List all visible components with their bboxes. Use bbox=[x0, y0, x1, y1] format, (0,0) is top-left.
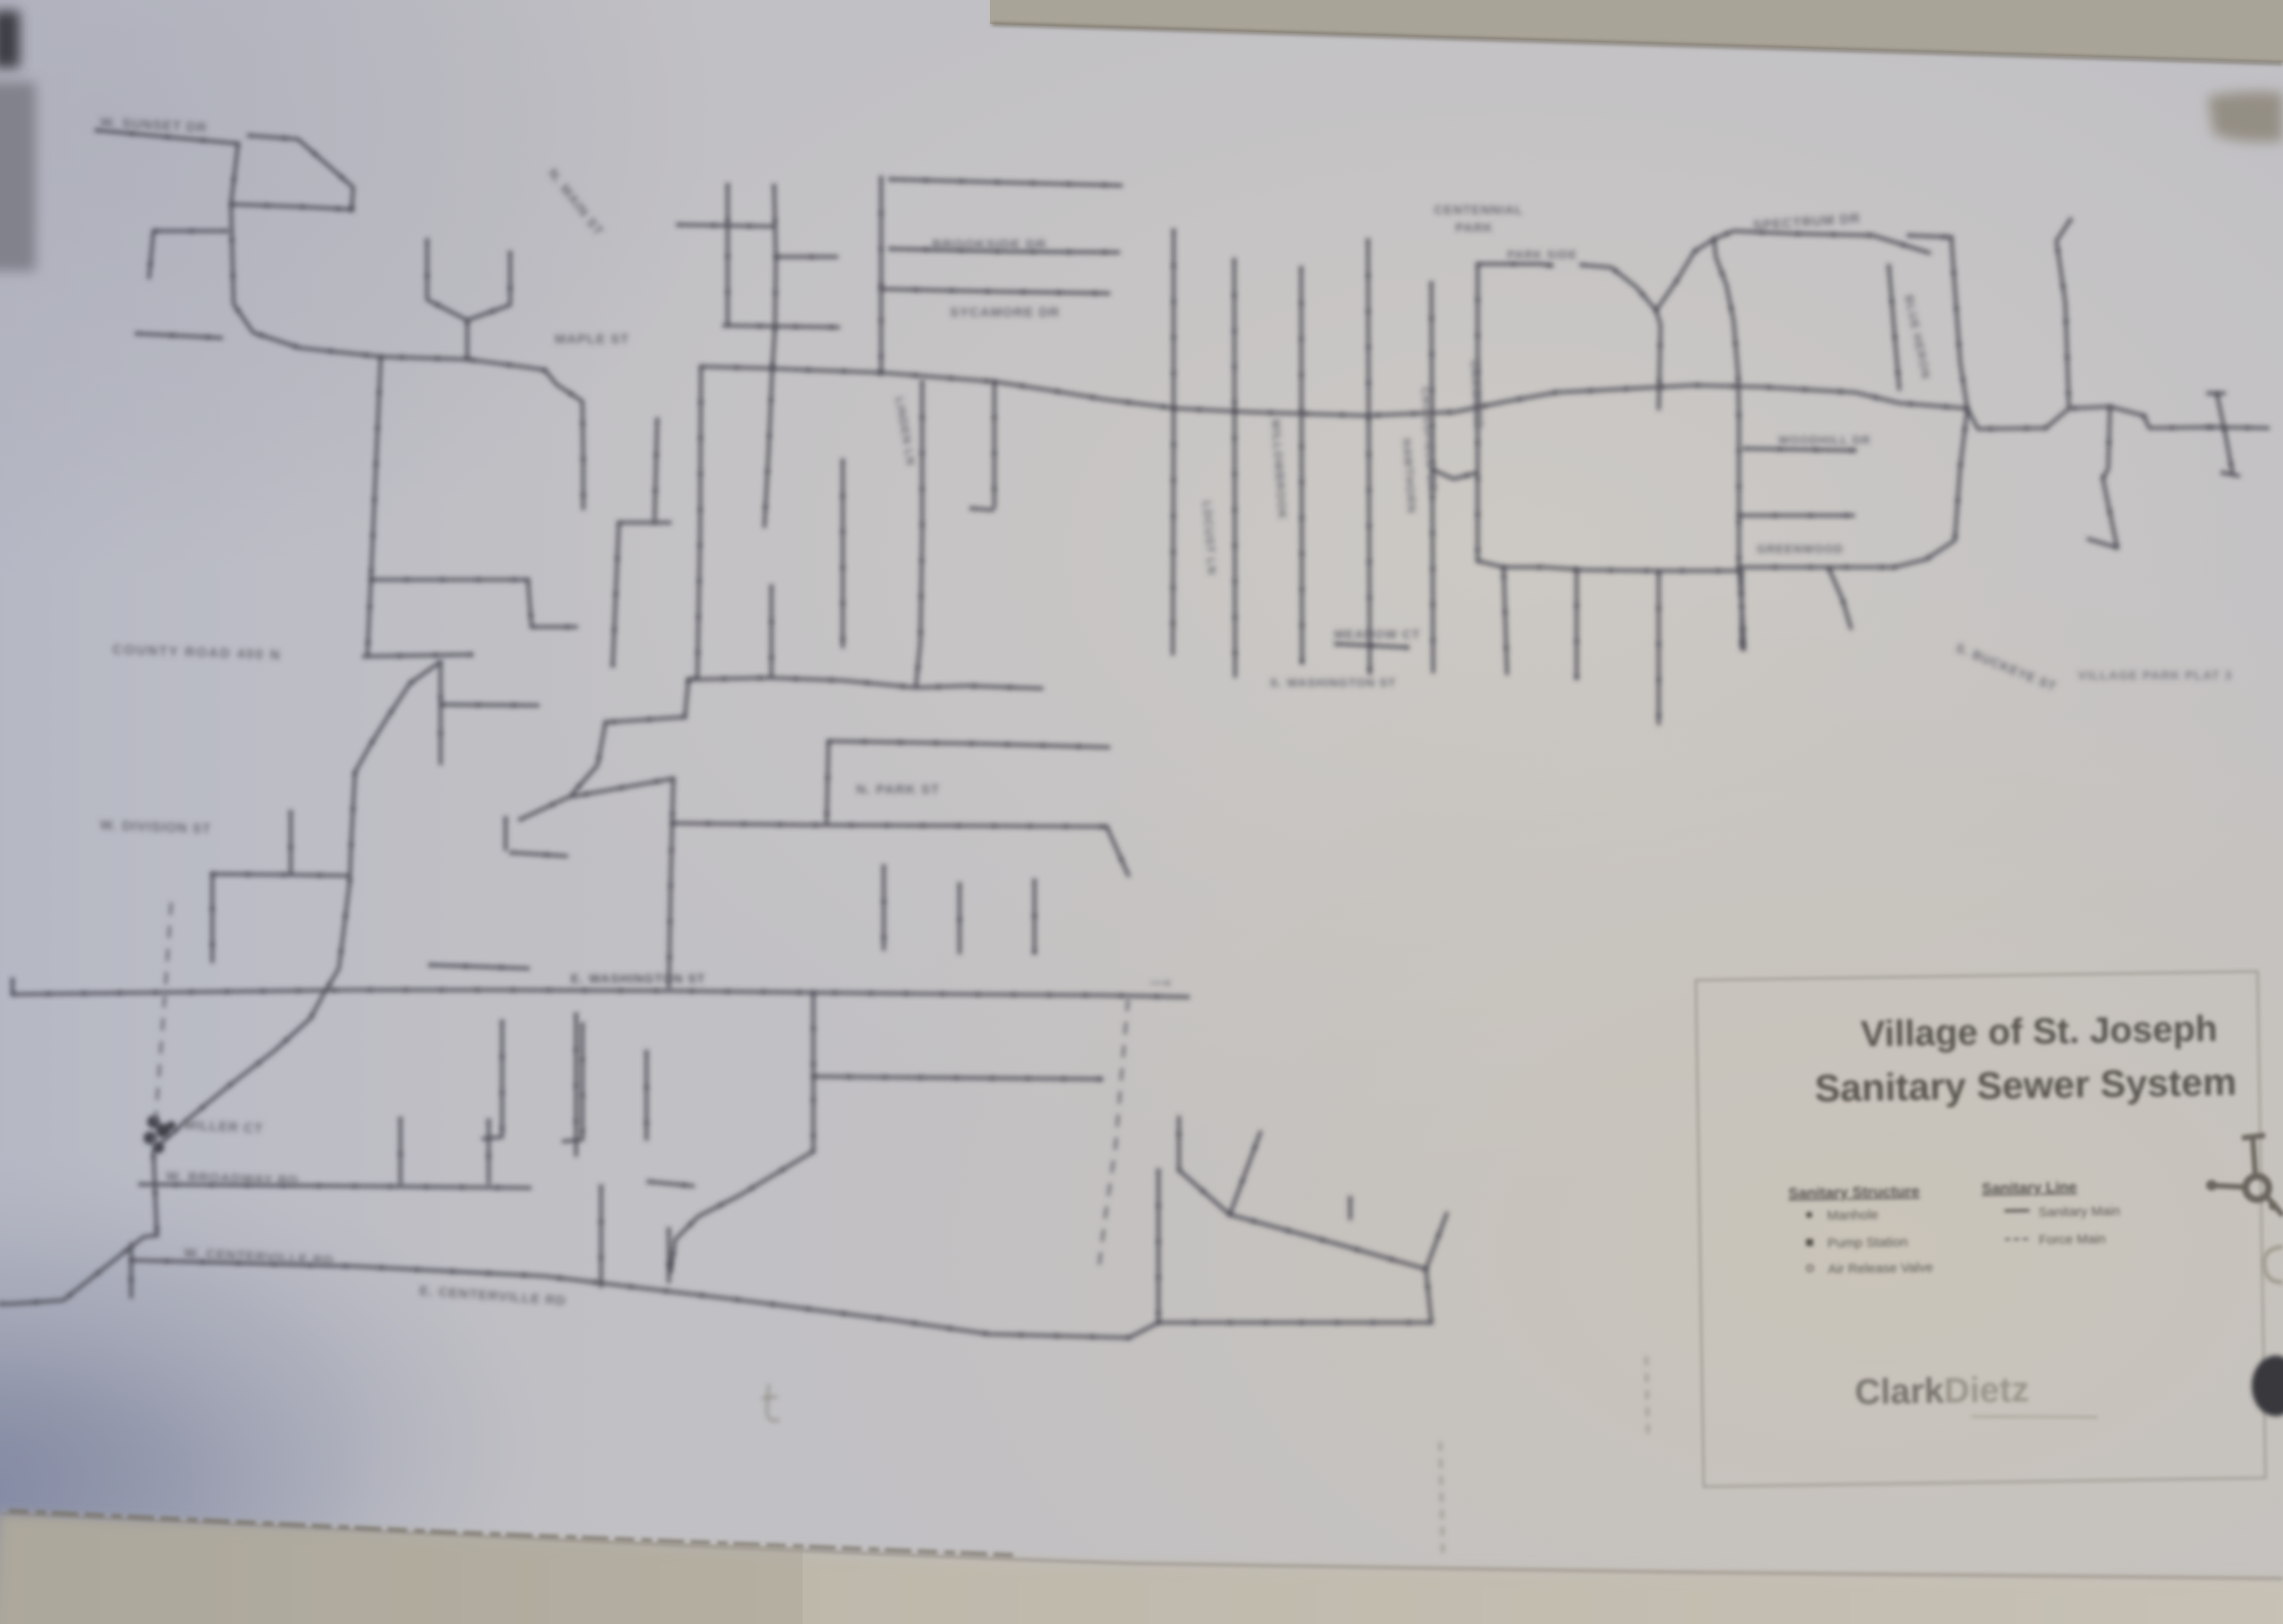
svg-text:CENTENNIAL: CENTENNIAL bbox=[1434, 202, 1523, 217]
svg-text:MAPLE ST: MAPLE ST bbox=[555, 332, 630, 347]
svg-text:PARK: PARK bbox=[1455, 220, 1494, 235]
svg-text:MEADOW CT: MEADOW CT bbox=[1334, 627, 1421, 641]
svg-text:SYCAMORE DR: SYCAMORE DR bbox=[950, 305, 1060, 320]
svg-text:Pump Station: Pump Station bbox=[1827, 1234, 1908, 1250]
svg-text:Sanitary Sewer System: Sanitary Sewer System bbox=[1814, 1061, 2237, 1110]
svg-text:S. WASHINGTON ST: S. WASHINGTON ST bbox=[1270, 676, 1396, 689]
svg-text:ClarkDietz: ClarkDietz bbox=[1854, 1370, 2029, 1412]
svg-text:Manhole: Manhole bbox=[1827, 1208, 1879, 1224]
svg-text:E. WASHINGTON ST: E. WASHINGTON ST bbox=[571, 971, 705, 985]
svg-text:N. PARK ST: N. PARK ST bbox=[856, 782, 940, 797]
svg-text:Sanitary Line: Sanitary Line bbox=[1982, 1178, 2077, 1197]
svg-text:PARK SIDE: PARK SIDE bbox=[1507, 248, 1578, 261]
svg-text:Force Main: Force Main bbox=[2039, 1232, 2106, 1248]
svg-text:BROOKSIDE DR: BROOKSIDE DR bbox=[932, 237, 1047, 252]
svg-text:VILLAGE PARK PLAT 3: VILLAGE PARK PLAT 3 bbox=[2078, 668, 2232, 682]
svg-text:WOODHILL DR: WOODHILL DR bbox=[1778, 433, 1871, 447]
svg-text:Sanitary Main: Sanitary Main bbox=[2039, 1204, 2121, 1220]
svg-text:Air Release Valve: Air Release Valve bbox=[1828, 1260, 1933, 1277]
svg-text:Sanitary Structure: Sanitary Structure bbox=[1788, 1183, 1920, 1201]
svg-text:GREENWOOD: GREENWOOD bbox=[1757, 542, 1843, 556]
svg-text:—«: —« bbox=[1150, 975, 1172, 989]
svg-text:Village of St. Joseph: Village of St. Joseph bbox=[1860, 1008, 2218, 1054]
